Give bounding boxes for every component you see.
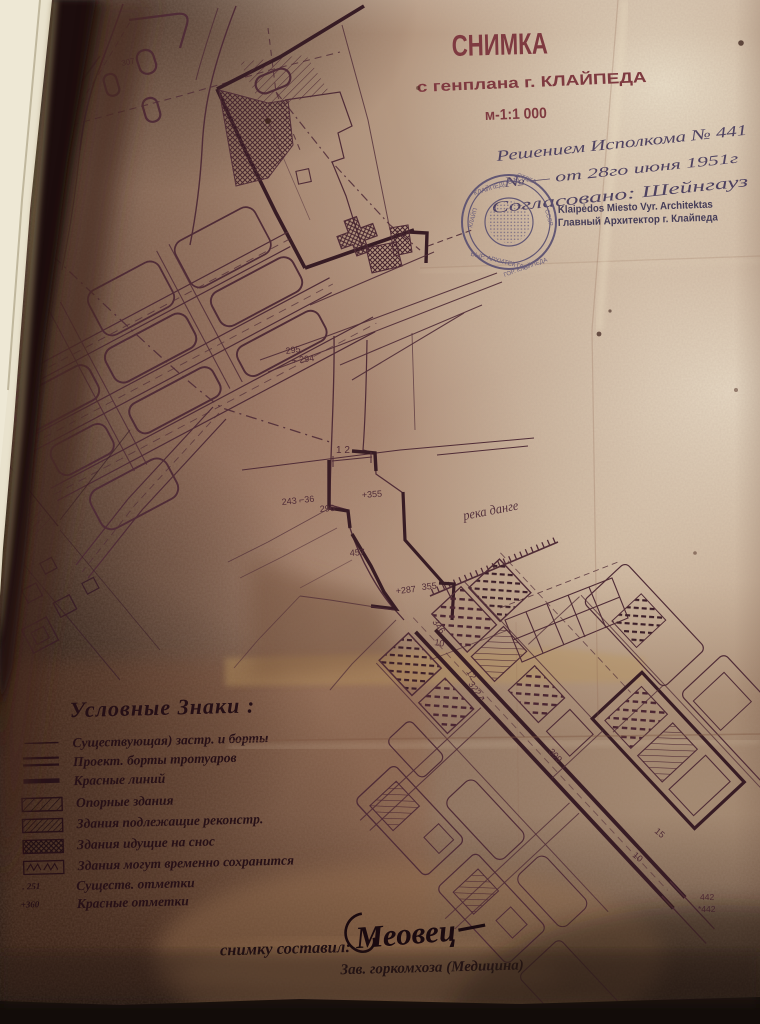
svg-text:СНИМКА: СНИМКА [451, 27, 548, 63]
svg-text:457: 457 [349, 547, 365, 558]
svg-text:+360: +360 [21, 899, 40, 909]
svg-text:+287: +287 [395, 584, 416, 596]
svg-text:Опорные здания: Опорные здания [76, 793, 174, 811]
svg-text:Красные линий: Красные линий [72, 771, 166, 788]
svg-text:Красные отметки: Красные отметки [76, 893, 190, 911]
svg-text:Условные Знаки :: Условные Знаки : [69, 692, 255, 722]
svg-text:м-1:1 000: м-1:1 000 [485, 105, 548, 124]
svg-text:. 251: . 251 [22, 881, 40, 891]
svg-text:296: 296 [319, 503, 335, 514]
svg-text:1 2: 1 2 [336, 445, 350, 456]
svg-text:Существ. отметки: Существ. отметки [76, 875, 195, 893]
svg-text:355: 355 [421, 580, 437, 592]
svg-text:442: 442 [700, 892, 714, 902]
svg-text:+355: +355 [361, 489, 382, 500]
